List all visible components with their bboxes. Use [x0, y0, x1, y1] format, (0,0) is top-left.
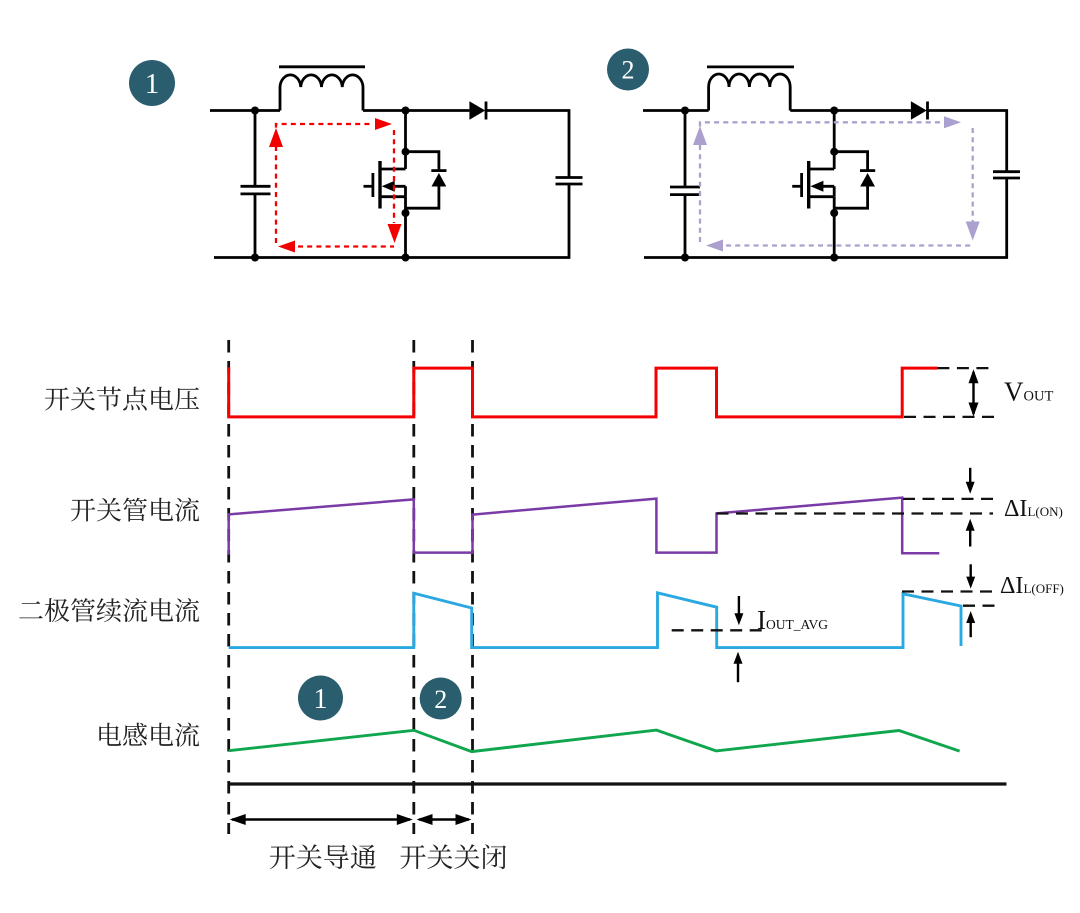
svg-text:2: 2	[434, 685, 447, 714]
svg-text:1: 1	[145, 68, 160, 100]
svg-text:2: 2	[622, 56, 635, 85]
svg-text:1: 1	[314, 684, 328, 715]
